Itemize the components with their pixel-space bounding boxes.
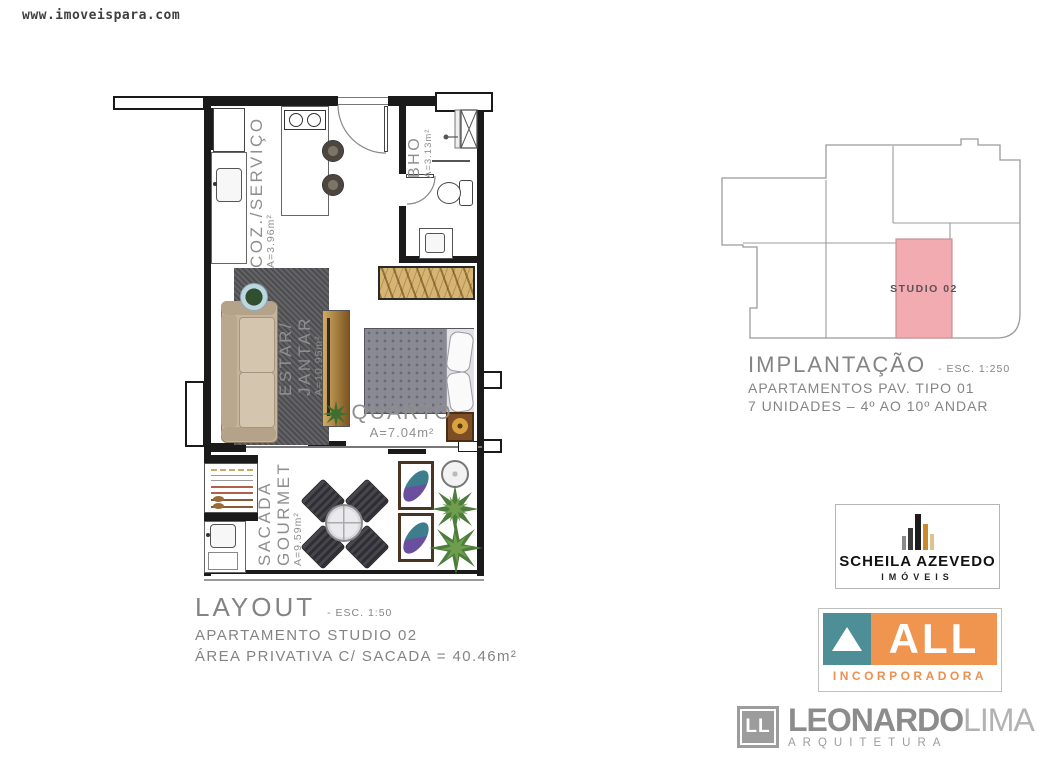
bathroom-door-arc [407,176,435,204]
living-name-line2: JANTAR [295,316,314,396]
implantation-line3: 7 UNIDADES – 4º AO 10º ANDAR [748,398,1010,414]
building-bar [923,524,928,550]
layout-scale: - ESC. 1:50 [327,607,392,619]
label-living: ESTAR/ JANTAR A=10.95m² [276,316,326,396]
leonardo-sub: ARQUITETURA [788,737,1034,749]
building-outline [722,139,1020,338]
bathroom-name: BHO [406,129,424,178]
label-kitchen: COZ./SERVIÇO A=3.96m² [247,116,278,268]
living-area: A=10.95m² [314,316,326,396]
balcony-name-line1: SACADA [255,462,274,566]
all-name-tile: ALL [871,613,997,665]
layout-line3: ÁREA PRIVATIVA C/ SACADA = 40.46m² [195,648,517,665]
balcony-area: A=9.59m² [293,462,305,566]
all-sub: INCORPORADORA [823,665,997,687]
buildings-icon [836,512,999,550]
implantation-diagram: STUDIO 02 [700,128,1050,353]
highlighted-unit-label: STUDIO 02 [890,283,958,295]
label-bathroom: BHO A=3.13m² [406,129,435,178]
building-bar [908,528,913,550]
balcony-name-line2: GOURMET [274,462,293,566]
building-bar [902,536,906,550]
kitchen-area: A=3.96m² [266,116,278,268]
implantation-line2: APARTAMENTOS PAV. TIPO 01 [748,380,1010,396]
layout-title: LAYOUT [195,592,315,623]
scheila-azevedo-logo: SCHEILA AZEVEDO IMÓVEIS [835,504,1000,589]
label-balcony: SACADA GOURMET A=9.59m² [255,462,305,566]
building-bar [930,534,934,550]
scheila-name: SCHEILA AZEVEDO [836,553,999,570]
all-name: ALL [889,618,980,660]
implantation-title: IMPLANTAÇÃO [748,352,926,378]
ll-icon: LL [737,706,779,748]
implantation-scale: - ESC. 1:250 [938,363,1010,375]
kitchen-name: COZ./SERVIÇO [247,116,266,268]
all-incorporadora-logo: ALL INCORPORADORA [818,608,1002,692]
floor-plan: COZ./SERVIÇO A=3.96m² BHO A=3.13m² ESTAR… [0,0,530,600]
building-bar [915,514,921,550]
leonardo-light: LIMA [963,702,1034,738]
label-bedroom: QUARTO A=7.04m² [350,401,454,440]
page: www.imoveispara.com [0,0,1050,758]
building-partitions [743,146,1020,338]
triangle-icon [832,627,862,651]
implantation-caption: IMPLANTAÇÃO - ESC. 1:250 APARTAMENTOS PA… [748,352,1010,414]
bedroom-name: QUARTO [350,401,454,425]
leonardo-bold: LEONARDO [788,702,963,738]
all-triangle-tile [823,613,871,665]
layout-caption: LAYOUT - ESC. 1:50 APARTAMENTO STUDIO 02… [195,592,517,665]
leonardo-lima-logo: LL LEONARDOLIMA ARQUITETURA [737,704,1034,749]
bedroom-area: A=7.04m² [350,425,454,440]
layout-line2: APARTAMENTO STUDIO 02 [195,627,517,644]
scheila-sub: IMÓVEIS [836,572,999,582]
shower-column [455,110,460,148]
bathroom-area: A=3.13m² [424,129,435,178]
living-name-line1: ESTAR/ [276,316,295,396]
entrance-door-arc [338,105,386,153]
ll-icon-text: LL [745,716,770,738]
